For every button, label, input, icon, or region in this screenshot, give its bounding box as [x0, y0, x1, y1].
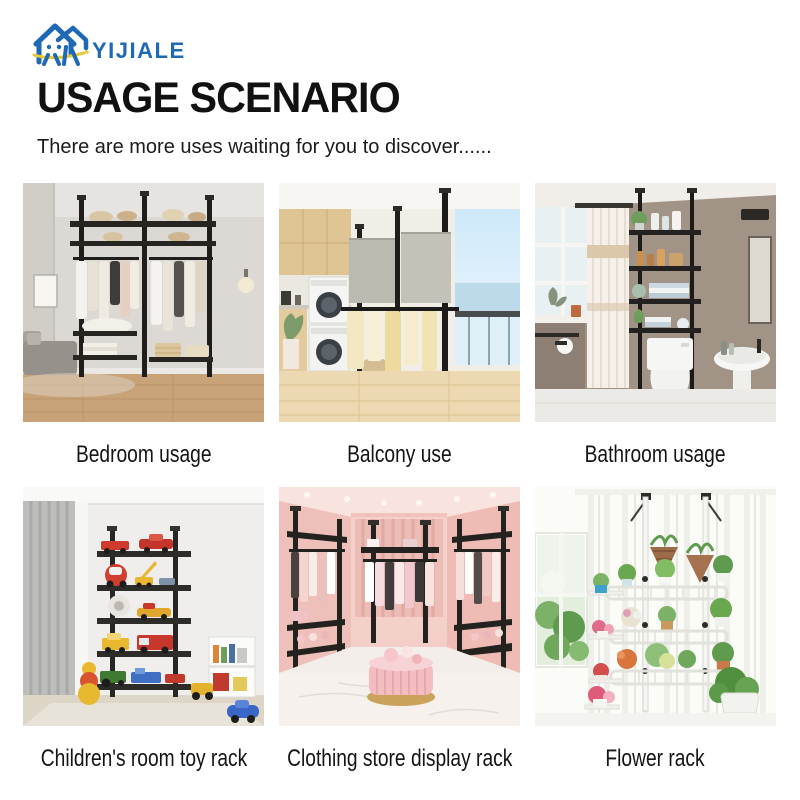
- caption-bathroom: Bathroom usage: [535, 422, 776, 487]
- brand-logo: YIJIALE: [28, 14, 186, 70]
- usage-scenario-grid: Bedroom usage: [23, 183, 776, 791]
- caption-clothing-store: Clothing store display rack: [279, 726, 520, 791]
- page-subtitle: There are more uses waiting for you to d…: [37, 136, 492, 159]
- brand-name: YIJIALE: [92, 38, 186, 64]
- caption-children-room: Children's room toy rack: [23, 726, 264, 791]
- caption-balcony: Balcony use: [279, 422, 520, 487]
- caption-bedroom: Bedroom usage: [23, 422, 264, 487]
- scenario-cell-clothing-store: Clothing store display rack: [279, 487, 520, 791]
- house-logo-icon: [28, 14, 90, 70]
- scenario-cell-balcony: Balcony use: [279, 183, 520, 487]
- page-title: USAGE SCENARIO: [37, 74, 400, 123]
- children-room-toy-rack-image: [23, 487, 264, 726]
- clothing-store-display-rack-image: [279, 487, 520, 726]
- balcony-use-image: [279, 183, 520, 422]
- flower-rack-image: [535, 487, 776, 726]
- caption-flower-rack: Flower rack: [535, 726, 776, 791]
- bedroom-usage-image: [23, 183, 264, 422]
- scenario-cell-bathroom: Bathroom usage: [535, 183, 776, 487]
- scenario-cell-flower-rack: Flower rack: [535, 487, 776, 791]
- bathroom-usage-image: [535, 183, 776, 422]
- scenario-cell-bedroom: Bedroom usage: [23, 183, 264, 487]
- scenario-cell-children-room: Children's room toy rack: [23, 487, 264, 791]
